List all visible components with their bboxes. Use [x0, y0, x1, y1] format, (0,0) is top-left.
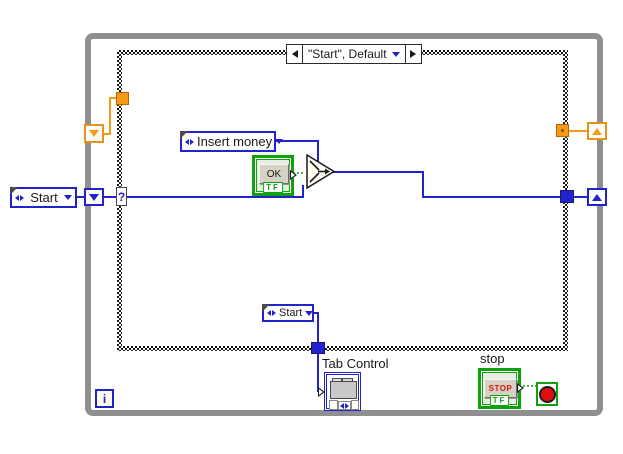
output-arrow-icon	[517, 383, 524, 393]
enum-increment-icon	[338, 401, 351, 410]
shift-register-up-icon	[592, 194, 602, 201]
case-selector-terminal[interactable]: ?	[116, 187, 127, 206]
shift-register-down-icon	[89, 130, 99, 137]
iteration-label: i	[103, 392, 106, 406]
select-function-node[interactable]	[306, 154, 336, 190]
block-diagram-canvas: "Start", Default Start Insert money Star…	[0, 0, 623, 454]
input-arrow-icon	[318, 387, 325, 397]
selector-question-mark: ?	[118, 190, 125, 204]
next-case-icon	[410, 50, 416, 58]
wire-select-output-to-shift-register[interactable]	[333, 172, 596, 197]
stop-caption: stop	[480, 351, 505, 366]
case-name-text: "Start", Default	[308, 47, 387, 61]
case-tunnel-blue-right[interactable]	[560, 190, 574, 203]
output-arrow-icon	[290, 170, 297, 180]
case-dropdown-icon[interactable]	[392, 52, 400, 57]
case-tunnel-orange-right[interactable]	[556, 124, 569, 137]
loop-condition-terminal[interactable]	[536, 382, 558, 406]
case-selector-label[interactable]: "Start", Default	[286, 44, 422, 64]
shift-register-right-blue[interactable]	[587, 188, 607, 206]
iteration-terminal[interactable]: i	[95, 389, 114, 408]
ok-button-face[interactable]: OK	[259, 164, 289, 184]
shift-register-left-blue[interactable]	[84, 188, 104, 206]
shift-register-right-orange[interactable]	[587, 122, 607, 140]
previous-case-button[interactable]	[287, 45, 303, 63]
shift-register-down-icon	[89, 194, 99, 201]
wires-layer	[0, 0, 623, 454]
tab-control-icon	[351, 400, 359, 410]
stop-button-terminal[interactable]: STOP TF	[478, 368, 521, 409]
tunnel-dot-icon	[561, 129, 564, 132]
ok-button-terminal[interactable]: OK TF	[252, 155, 294, 196]
ok-button-label: OK	[267, 169, 281, 180]
boolean-datatype-label: TF	[263, 182, 283, 193]
tab-control-icon	[329, 400, 338, 410]
shift-register-up-icon	[592, 128, 602, 135]
stop-button-label: STOP	[489, 384, 513, 393]
tab-control-caption: Tab Control	[322, 356, 388, 371]
boolean-datatype-label: TF	[490, 395, 510, 406]
case-tunnel-blue-bottom[interactable]	[311, 342, 325, 354]
tab-control-terminal[interactable]	[324, 372, 361, 411]
case-tunnel-orange-left[interactable]	[116, 92, 129, 105]
tab-control-icon	[330, 381, 357, 399]
case-name[interactable]: "Start", Default	[303, 45, 405, 63]
stop-sign-icon	[539, 386, 556, 403]
next-case-button[interactable]	[405, 45, 421, 63]
shift-register-left-orange[interactable]	[84, 124, 104, 143]
previous-case-icon	[292, 50, 298, 58]
